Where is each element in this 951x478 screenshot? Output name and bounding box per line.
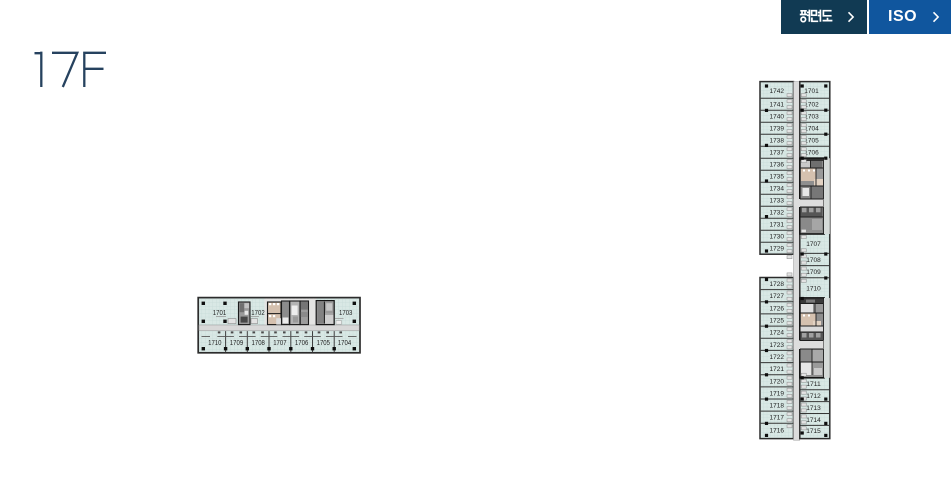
svg-text:1729: 1729 bbox=[770, 246, 785, 253]
svg-text:1718: 1718 bbox=[770, 403, 785, 410]
svg-text:1716: 1716 bbox=[770, 427, 785, 434]
svg-text:1738: 1738 bbox=[770, 138, 785, 145]
svg-text:1742: 1742 bbox=[770, 88, 785, 95]
svg-text:1736: 1736 bbox=[770, 162, 785, 169]
svg-text:1707: 1707 bbox=[806, 241, 821, 248]
svg-text:1737: 1737 bbox=[770, 150, 785, 157]
svg-text:1719: 1719 bbox=[770, 390, 785, 397]
svg-text:1714: 1714 bbox=[806, 417, 821, 424]
svg-text:1710: 1710 bbox=[208, 340, 221, 347]
svg-text:1705: 1705 bbox=[317, 340, 330, 347]
svg-text:1706: 1706 bbox=[804, 150, 819, 157]
svg-text:1710: 1710 bbox=[806, 285, 821, 292]
svg-text:1707: 1707 bbox=[273, 340, 286, 347]
svg-text:1704: 1704 bbox=[804, 126, 819, 133]
svg-text:1717: 1717 bbox=[770, 415, 785, 422]
svg-text:1702: 1702 bbox=[804, 102, 819, 109]
svg-text:1703: 1703 bbox=[804, 114, 819, 121]
svg-text:1724: 1724 bbox=[770, 330, 785, 337]
svg-text:1726: 1726 bbox=[770, 305, 785, 312]
svg-text:1701: 1701 bbox=[804, 88, 819, 95]
svg-text:1735: 1735 bbox=[770, 174, 785, 181]
svg-text:1720: 1720 bbox=[770, 378, 785, 385]
svg-text:1709: 1709 bbox=[230, 340, 243, 347]
svg-text:1740: 1740 bbox=[770, 114, 785, 121]
svg-text:1721: 1721 bbox=[770, 366, 785, 373]
svg-text:1715: 1715 bbox=[806, 428, 821, 435]
svg-text:1725: 1725 bbox=[770, 318, 785, 325]
svg-text:1733: 1733 bbox=[770, 198, 785, 205]
svg-text:1704: 1704 bbox=[338, 340, 351, 347]
svg-text:1732: 1732 bbox=[770, 210, 785, 217]
svg-text:1711: 1711 bbox=[806, 381, 821, 388]
svg-text:1727: 1727 bbox=[770, 293, 785, 300]
svg-text:1709: 1709 bbox=[806, 269, 821, 276]
svg-text:1741: 1741 bbox=[770, 102, 785, 109]
svg-text:1708: 1708 bbox=[252, 340, 265, 347]
svg-text:1713: 1713 bbox=[806, 405, 821, 412]
svg-text:1723: 1723 bbox=[770, 342, 785, 349]
svg-text:1708: 1708 bbox=[806, 257, 821, 264]
svg-text:1712: 1712 bbox=[806, 393, 821, 400]
svg-text:1730: 1730 bbox=[770, 234, 785, 241]
svg-text:1706: 1706 bbox=[295, 340, 308, 347]
svg-text:1731: 1731 bbox=[770, 222, 785, 229]
svg-text:1705: 1705 bbox=[804, 138, 819, 145]
svg-text:1739: 1739 bbox=[770, 126, 785, 133]
svg-text:1728: 1728 bbox=[770, 281, 785, 288]
svg-text:1722: 1722 bbox=[770, 354, 785, 361]
svg-text:1703: 1703 bbox=[339, 310, 352, 317]
svg-text:1734: 1734 bbox=[770, 186, 785, 193]
